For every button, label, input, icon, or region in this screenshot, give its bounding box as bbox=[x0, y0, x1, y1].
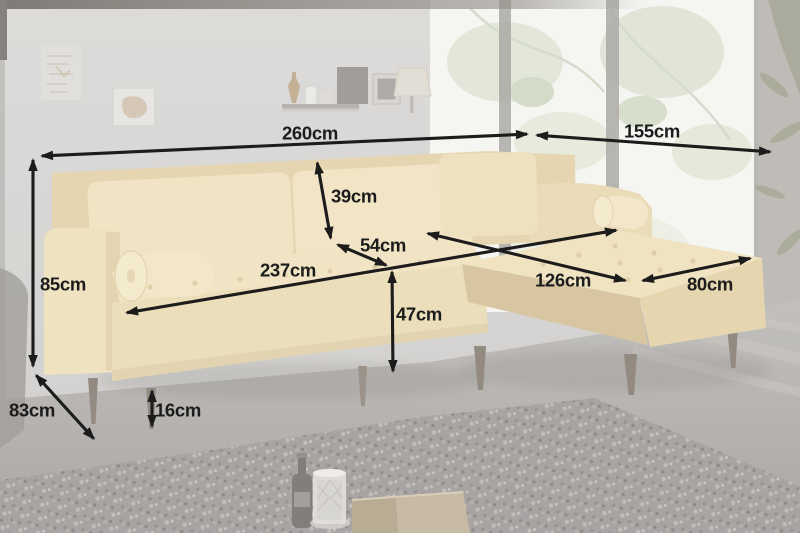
arrowhead-icon bbox=[125, 306, 139, 315]
arrowhead-icon bbox=[28, 158, 38, 171]
dimension-label-backrest-height: 39cm bbox=[331, 186, 377, 207]
arrowhead-icon bbox=[315, 161, 324, 175]
dimension-label-seat-height: 47cm bbox=[396, 304, 442, 325]
arrowhead-icon bbox=[40, 151, 53, 160]
dimension-label-chaise-length: 126cm bbox=[535, 270, 591, 291]
product-dimension-image: 260cm155cm85cm39cm54cm237cm126cm80cm47cm… bbox=[0, 0, 800, 533]
arrowhead-icon bbox=[28, 355, 38, 368]
arrowhead-icon bbox=[388, 360, 397, 373]
arrowhead-icon bbox=[516, 130, 529, 139]
arrowhead-icon bbox=[387, 270, 396, 283]
arrowhead-icon bbox=[324, 226, 333, 240]
dimension-backrest-depth: 54cm bbox=[336, 235, 406, 267]
dimension-line-backrest-height bbox=[317, 163, 330, 238]
dimension-label-leg-height: 16cm bbox=[155, 400, 201, 421]
dimension-label-chaise-width: 80cm bbox=[687, 274, 733, 295]
dimension-layer: 260cm155cm85cm39cm54cm237cm126cm80cm47cm… bbox=[0, 0, 800, 533]
arrowhead-icon bbox=[426, 231, 440, 240]
dimension-leg-height: 16cm bbox=[147, 389, 201, 428]
arrowhead-icon bbox=[641, 274, 655, 283]
arrowhead-icon bbox=[374, 257, 388, 266]
dimension-chaise-length: 126cm bbox=[426, 231, 627, 290]
arrowhead-icon bbox=[604, 227, 618, 236]
dimension-label-total-width: 260cm bbox=[282, 123, 338, 144]
dimension-label-overall-height: 85cm bbox=[40, 274, 86, 295]
dimension-overall-height: 85cm bbox=[28, 158, 86, 368]
dimension-backrest-height: 39cm bbox=[315, 161, 377, 240]
dimension-label-backrest-depth: 54cm bbox=[360, 235, 406, 256]
dimension-label-corner-width: 155cm bbox=[624, 121, 680, 142]
dimension-line-seat-height bbox=[392, 272, 393, 371]
arrowhead-icon bbox=[613, 273, 627, 282]
arrowhead-icon bbox=[336, 244, 350, 253]
dimension-label-depth: 83cm bbox=[9, 400, 55, 421]
dimension-corner-width: 155cm bbox=[535, 121, 772, 156]
arrowhead-icon bbox=[738, 256, 752, 265]
dimension-chaise-width: 80cm bbox=[641, 256, 752, 295]
dimension-seat-height: 47cm bbox=[387, 270, 442, 373]
dimension-total-width: 260cm bbox=[40, 123, 529, 161]
dimension-label-seat-width: 237cm bbox=[260, 260, 316, 281]
dimension-depth: 83cm bbox=[9, 374, 95, 440]
